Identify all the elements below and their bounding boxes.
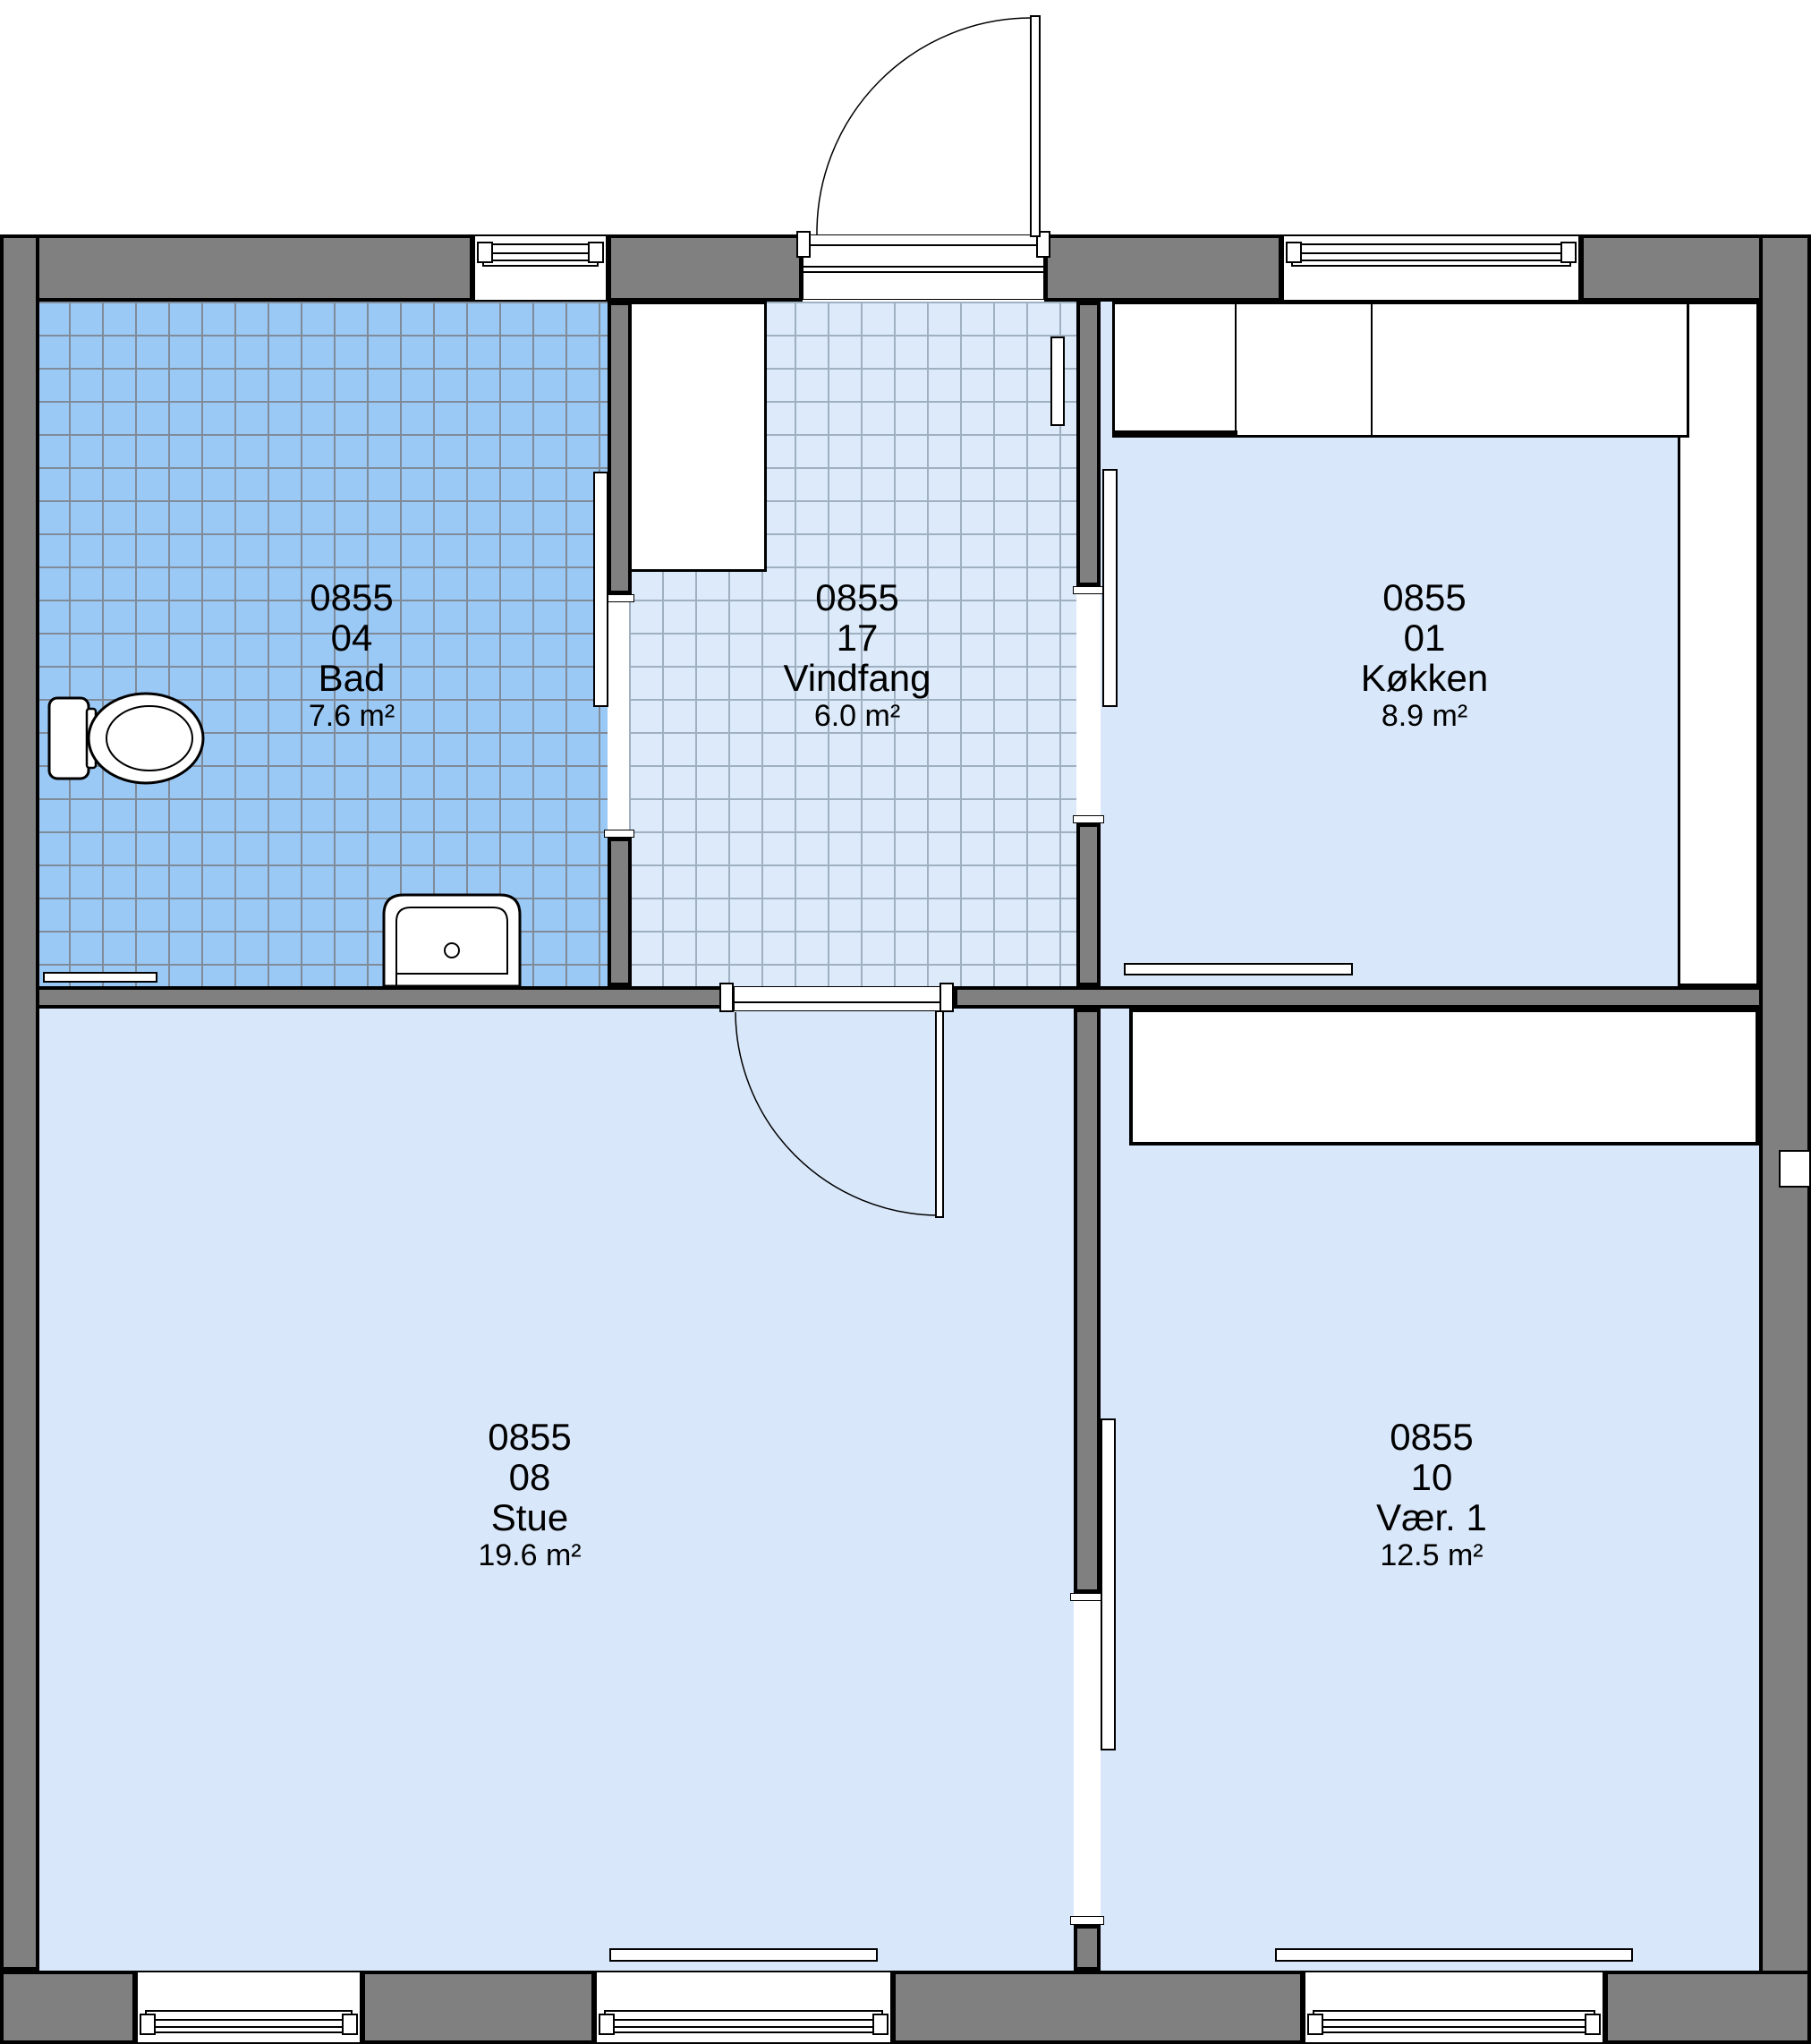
- room-project-number: 0855: [669, 577, 1045, 617]
- room-name: Køkken: [1237, 658, 1612, 698]
- room-number: 17: [669, 617, 1045, 658]
- stue-door-swing-arc: [735, 1012, 936, 1215]
- room-stamp-bad: 0855 04 Bad 7.6 m²: [164, 577, 540, 734]
- fixtures-layer: [0, 0, 1811, 2044]
- entrance-door-leaf: [1031, 16, 1040, 236]
- room-number: 04: [164, 617, 540, 658]
- room-number: 08: [342, 1457, 718, 1497]
- room-number: 01: [1237, 617, 1612, 658]
- room-stamp-stue: 0855 08 Stue 19.6 m²: [342, 1417, 718, 1573]
- room-area: 6.0 m²: [669, 698, 1045, 734]
- room-name: Bad: [164, 658, 540, 698]
- room-project-number: 0855: [1237, 577, 1612, 617]
- room-area: 7.6 m²: [164, 698, 540, 734]
- sink: [384, 895, 520, 986]
- room-project-number: 0855: [342, 1417, 718, 1457]
- room-stamp-kokken: 0855 01 Køkken 8.9 m²: [1237, 577, 1612, 734]
- stue-door-leaf: [936, 1011, 943, 1217]
- room-project-number: 0855: [164, 577, 540, 617]
- room-number: 10: [1244, 1457, 1620, 1497]
- room-area: 8.9 m²: [1237, 698, 1612, 734]
- room-project-number: 0855: [1244, 1417, 1620, 1457]
- room-area: 12.5 m²: [1244, 1537, 1620, 1573]
- room-stamp-vaer1: 0855 10 Vær. 1 12.5 m²: [1244, 1417, 1620, 1573]
- room-name: Stue: [342, 1497, 718, 1537]
- room-stamp-vindfang: 0855 17 Vindfang 6.0 m²: [669, 577, 1045, 734]
- room-area: 19.6 m²: [342, 1537, 718, 1573]
- entrance-door-swing-arc: [817, 18, 1031, 234]
- room-name: Vær. 1: [1244, 1497, 1620, 1537]
- room-name: Vindfang: [669, 658, 1045, 698]
- floor-plan-canvas: 0855 04 Bad 7.6 m² 0855 17 Vindfang 6.0 …: [0, 0, 1811, 2044]
